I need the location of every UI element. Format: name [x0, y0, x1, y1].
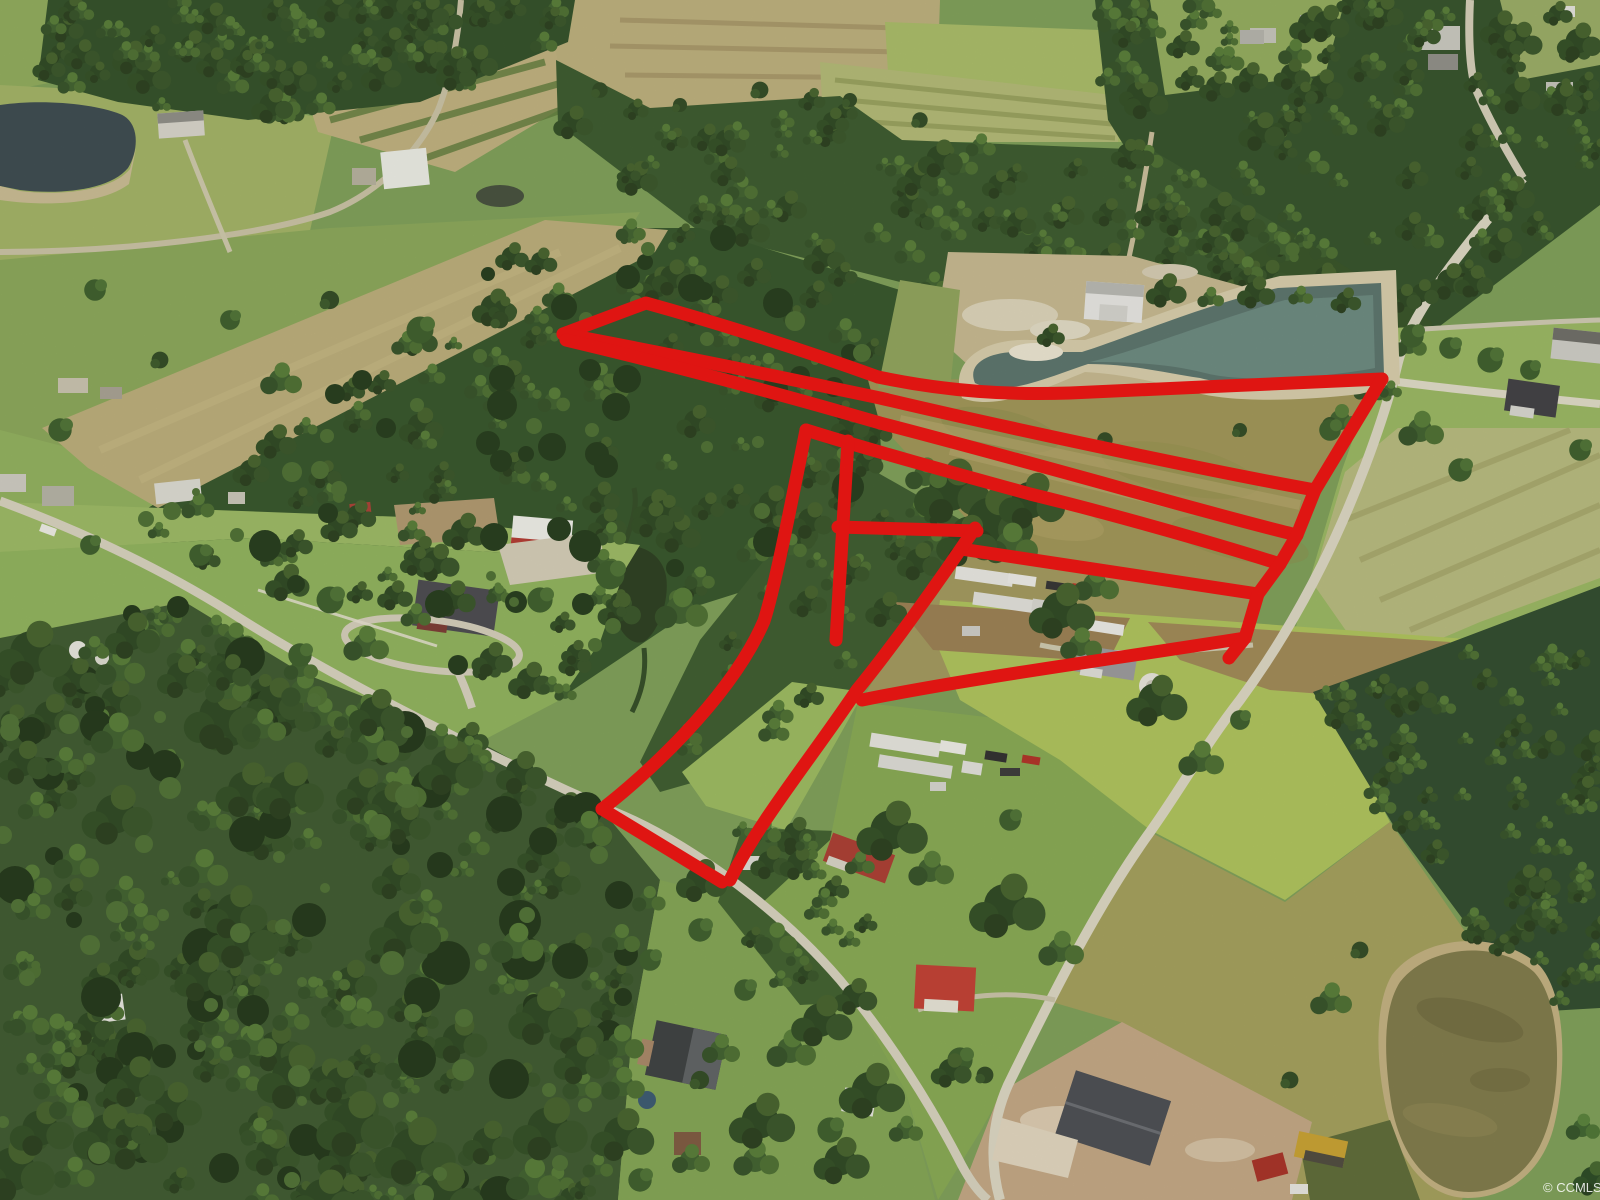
svg-text:© CCMLS: © CCMLS — [1543, 1180, 1600, 1195]
